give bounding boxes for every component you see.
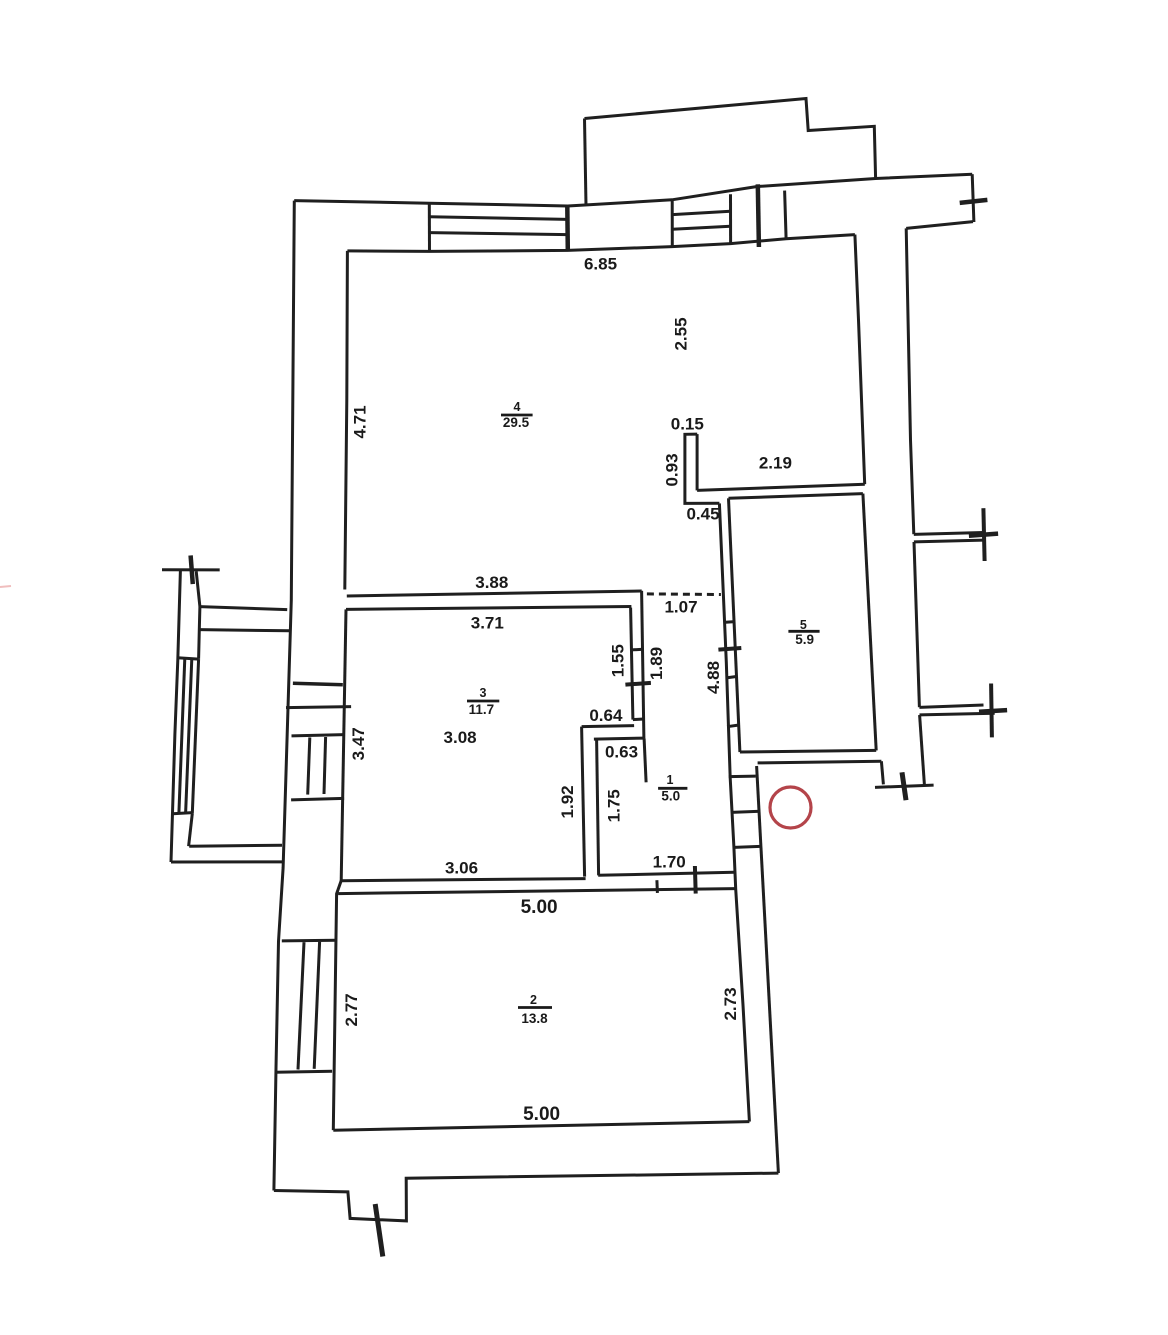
svg-text:29.5: 29.5 xyxy=(503,415,530,430)
svg-text:1.70: 1.70 xyxy=(653,852,686,871)
svg-text:1.89: 1.89 xyxy=(647,647,666,680)
svg-text:2.19: 2.19 xyxy=(759,454,792,473)
svg-text:5.0: 5.0 xyxy=(661,788,680,803)
svg-text:3.88: 3.88 xyxy=(475,573,508,592)
svg-text:2.73: 2.73 xyxy=(721,987,740,1020)
svg-text:3.71: 3.71 xyxy=(471,614,504,633)
svg-text:3.06: 3.06 xyxy=(445,859,478,878)
svg-text:4.88: 4.88 xyxy=(704,661,723,694)
svg-text:0.93: 0.93 xyxy=(662,453,681,486)
svg-text:1.92: 1.92 xyxy=(558,785,577,818)
svg-text:13.8: 13.8 xyxy=(521,1011,548,1026)
svg-text:2.55: 2.55 xyxy=(672,317,691,350)
svg-text:11.7: 11.7 xyxy=(469,702,495,717)
svg-text:2: 2 xyxy=(530,993,537,1007)
svg-text:5.00: 5.00 xyxy=(521,897,558,918)
svg-text:0.15: 0.15 xyxy=(671,415,704,434)
svg-text:2.77: 2.77 xyxy=(342,993,361,1026)
svg-text:0.64: 0.64 xyxy=(589,706,623,725)
svg-text:3.47: 3.47 xyxy=(349,727,368,760)
svg-text:5.9: 5.9 xyxy=(795,632,814,647)
svg-text:1.55: 1.55 xyxy=(608,644,627,677)
svg-text:0.63: 0.63 xyxy=(605,743,638,762)
svg-text:0.45: 0.45 xyxy=(686,505,719,524)
svg-text:5.00: 5.00 xyxy=(523,1104,560,1125)
svg-text:3: 3 xyxy=(480,686,487,700)
svg-text:5: 5 xyxy=(800,618,807,632)
svg-text:1.75: 1.75 xyxy=(605,789,624,822)
svg-text:1: 1 xyxy=(667,773,674,787)
svg-text:1.07: 1.07 xyxy=(664,598,697,617)
svg-text:4: 4 xyxy=(514,400,521,414)
svg-text:4.71: 4.71 xyxy=(351,405,370,438)
svg-text:3.08: 3.08 xyxy=(444,728,477,747)
svg-text:6.85: 6.85 xyxy=(584,255,617,274)
